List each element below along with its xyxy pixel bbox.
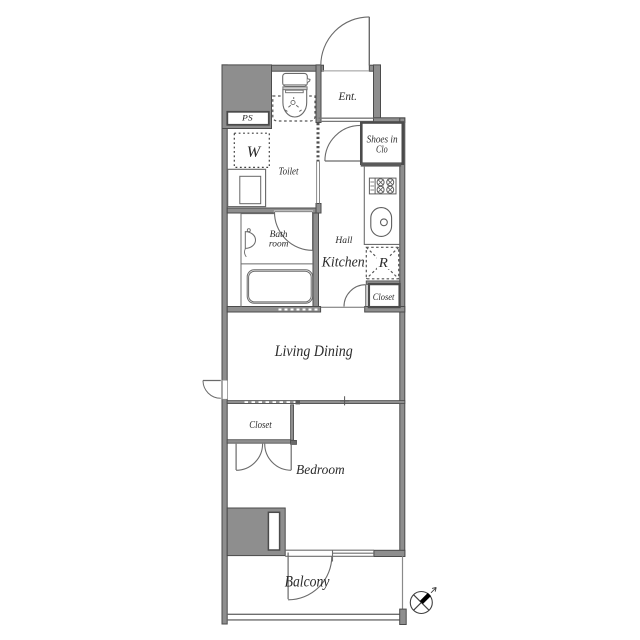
svg-text:room: room — [269, 239, 289, 249]
svg-text:Ent.: Ent. — [337, 89, 356, 103]
svg-text:Hall: Hall — [334, 235, 352, 246]
svg-text:Closet: Closet — [373, 292, 395, 303]
svg-text:Closet: Closet — [249, 420, 272, 431]
svg-text:Toilet: Toilet — [279, 167, 299, 178]
svg-text:PS: PS — [241, 113, 253, 123]
svg-text:R: R — [378, 255, 389, 270]
svg-text:W: W — [247, 142, 262, 161]
svg-text:Bath: Bath — [270, 229, 288, 239]
svg-text:Shoes in: Shoes in — [367, 133, 398, 145]
svg-text:Living Dining: Living Dining — [274, 343, 353, 360]
svg-text:Bedroom: Bedroom — [296, 462, 345, 477]
svg-text:Balcony: Balcony — [285, 574, 330, 591]
svg-text:Kitchen: Kitchen — [321, 255, 365, 271]
svg-text:Clo: Clo — [376, 145, 388, 156]
